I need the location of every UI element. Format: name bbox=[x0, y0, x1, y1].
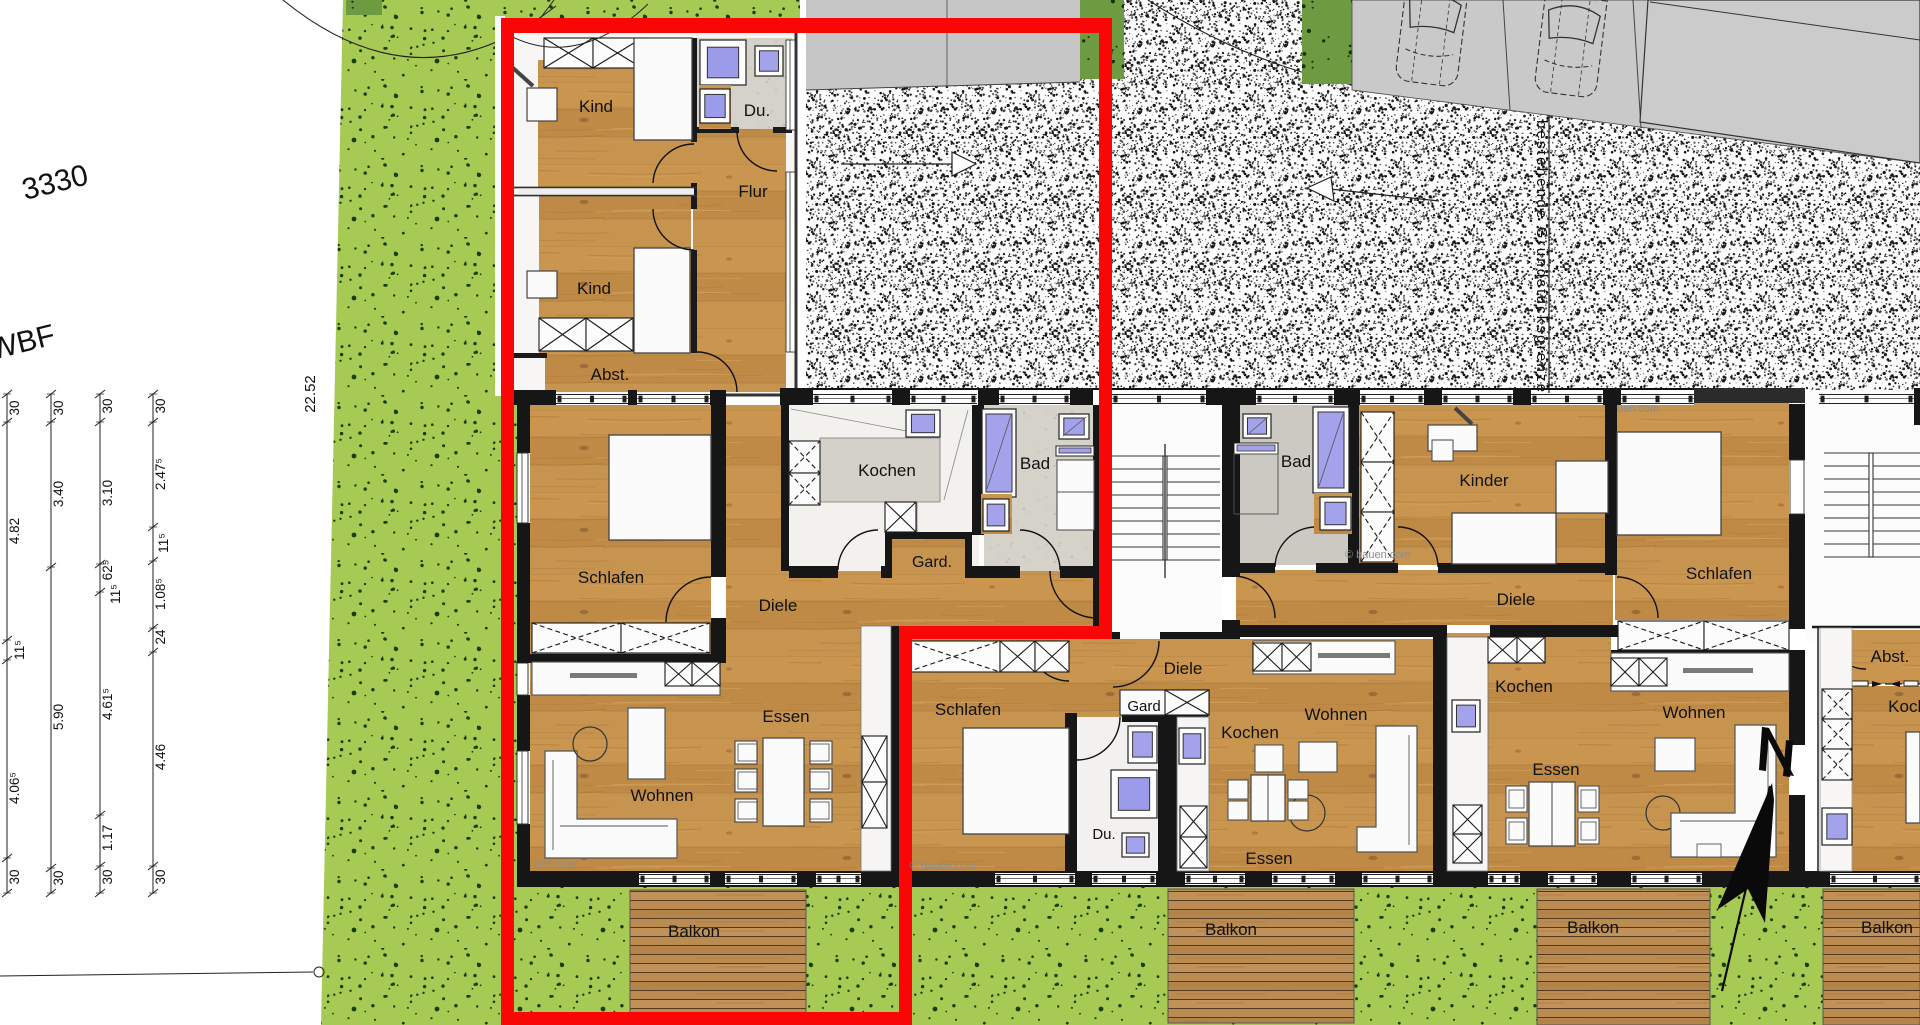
svg-text:Schlafen: Schlafen bbox=[1686, 564, 1752, 583]
svg-text:Abst.: Abst. bbox=[591, 365, 630, 384]
svg-text:Essen: Essen bbox=[1245, 849, 1292, 868]
svg-text:22.52: 22.52 bbox=[302, 375, 319, 413]
svg-text:30: 30 bbox=[51, 870, 66, 885]
svg-text:30: 30 bbox=[100, 398, 115, 413]
svg-text:4.61⁵: 4.61⁵ bbox=[100, 688, 115, 720]
svg-text:Flur: Flur bbox=[738, 182, 768, 201]
svg-text:11⁵: 11⁵ bbox=[12, 640, 27, 660]
svg-text:24: 24 bbox=[153, 629, 168, 645]
svg-text:Diele: Diele bbox=[1164, 659, 1203, 678]
svg-text:Diele: Diele bbox=[759, 596, 798, 615]
svg-text:Gard: Gard bbox=[1127, 698, 1160, 715]
svg-text:Kind: Kind bbox=[579, 97, 613, 116]
svg-text:Kochen: Kochen bbox=[1888, 697, 1920, 716]
svg-text:4.06⁵: 4.06⁵ bbox=[7, 772, 22, 804]
svg-text:Kind: Kind bbox=[577, 279, 611, 298]
svg-text:Diele: Diele bbox=[1497, 590, 1536, 609]
svg-text:30: 30 bbox=[153, 869, 168, 884]
svg-text:4.82: 4.82 bbox=[7, 518, 22, 544]
svg-text:11⁵: 11⁵ bbox=[108, 584, 123, 604]
svg-text:Schlafen: Schlafen bbox=[578, 568, 644, 587]
svg-text:uen.com: uen.com bbox=[1617, 403, 1659, 415]
svg-text:62⁵: 62⁵ bbox=[100, 560, 115, 581]
svg-text:1.08⁵: 1.08⁵ bbox=[153, 578, 168, 610]
svg-text:Wohnen: Wohnen bbox=[1662, 703, 1725, 722]
svg-text:Gard.: Gard. bbox=[912, 554, 952, 571]
svg-text:30: 30 bbox=[7, 869, 22, 884]
svg-text:Bad: Bad bbox=[1281, 452, 1311, 471]
svg-text:Kochen: Kochen bbox=[1221, 723, 1279, 742]
svg-text:30: 30 bbox=[100, 869, 115, 884]
svg-text:3.40: 3.40 bbox=[51, 481, 66, 507]
svg-text:Essen: Essen bbox=[1532, 760, 1579, 779]
svg-text:Balkon: Balkon bbox=[1861, 918, 1913, 937]
svg-text:© bauen.com: © bauen.com bbox=[910, 860, 976, 872]
svg-text:© bauen.com: © bauen.com bbox=[1345, 549, 1411, 561]
svg-text:Balkon: Balkon bbox=[668, 922, 720, 941]
svg-text:Balkon: Balkon bbox=[1205, 920, 1257, 939]
svg-text:2.47⁵: 2.47⁵ bbox=[153, 458, 168, 490]
svg-text:Balkon: Balkon bbox=[1567, 918, 1619, 937]
svg-text:3.10: 3.10 bbox=[100, 480, 115, 506]
svg-text:30: 30 bbox=[51, 400, 66, 415]
svg-text:11⁵: 11⁵ bbox=[156, 533, 171, 553]
svg-text:Du.: Du. bbox=[1092, 826, 1115, 843]
svg-text:Schlafen: Schlafen bbox=[935, 700, 1001, 719]
svg-text:4.46: 4.46 bbox=[153, 744, 168, 770]
svg-text:30: 30 bbox=[7, 400, 22, 415]
svg-text:30: 30 bbox=[153, 398, 168, 413]
svg-text:Wohnen: Wohnen bbox=[1304, 705, 1367, 724]
svg-text:uen.com: uen.com bbox=[534, 859, 576, 871]
svg-text:5.90: 5.90 bbox=[51, 704, 66, 730]
svg-text:Kochen: Kochen bbox=[1495, 677, 1553, 696]
svg-text:1.17: 1.17 bbox=[100, 825, 115, 851]
svg-text:Bad: Bad bbox=[1020, 454, 1050, 473]
svg-text:bestehende Grundstücksgrenze: bestehende Grundstücksgrenze bbox=[1533, 120, 1550, 394]
svg-text:Du.: Du. bbox=[744, 101, 770, 120]
svg-text:Wohnen: Wohnen bbox=[630, 786, 693, 805]
svg-text:Abst.: Abst. bbox=[1871, 647, 1910, 666]
svg-text:Essen: Essen bbox=[762, 707, 809, 726]
svg-text:Kinder: Kinder bbox=[1459, 471, 1508, 490]
svg-text:Kochen: Kochen bbox=[858, 461, 916, 480]
